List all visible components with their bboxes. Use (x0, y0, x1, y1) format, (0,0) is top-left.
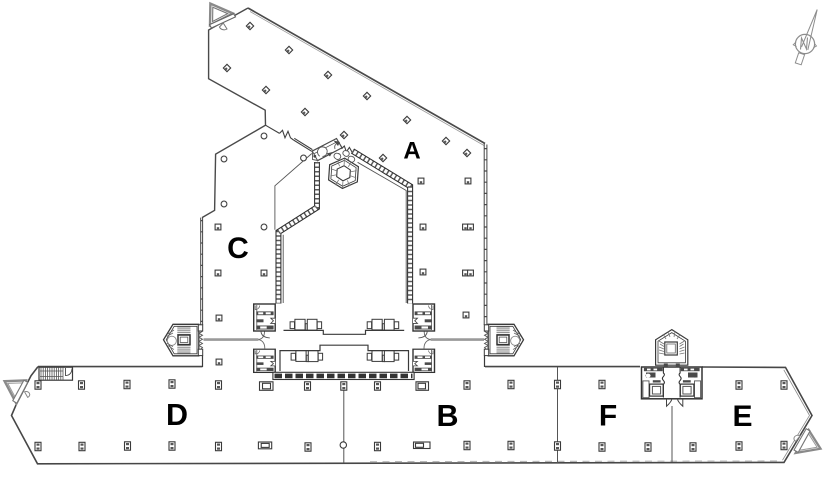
svg-text:E: E (732, 400, 752, 433)
svg-text:B: B (436, 399, 458, 433)
svg-text:D: D (166, 398, 188, 432)
svg-text:F: F (599, 400, 617, 433)
svg-text:A: A (403, 138, 420, 165)
svg-text:C: C (227, 232, 249, 265)
